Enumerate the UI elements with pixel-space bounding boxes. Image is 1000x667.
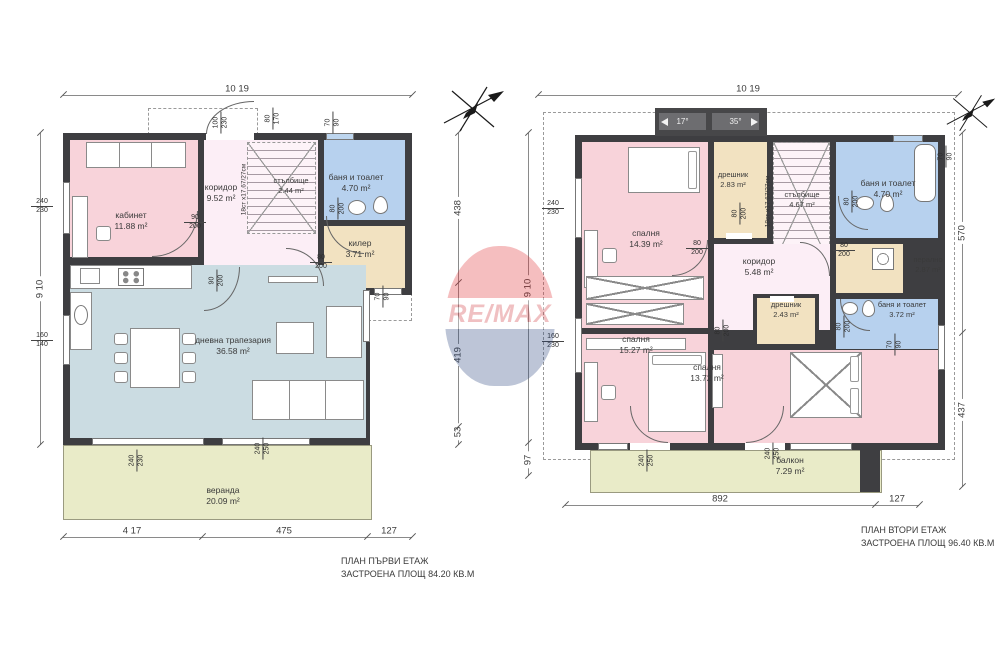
opening-tag: 80200	[714, 320, 731, 342]
opening-tag: 7090	[324, 112, 341, 134]
floor2-caption: ПЛАН ВТОРИ ЕТАЖ ЗАСТРОЕНА ПЛОЩ 96.40 КВ.…	[861, 524, 994, 549]
window-tag: 240250	[638, 450, 655, 472]
window-tag: 7090	[886, 334, 903, 356]
dim-line	[538, 95, 958, 96]
opening-tag: 80200	[310, 254, 332, 271]
dim-label: 127	[886, 494, 908, 505]
window	[575, 178, 582, 238]
stove	[118, 268, 144, 286]
room-label-bedroom2: спалня 15.27 m²	[601, 334, 671, 356]
dim-label: 419	[453, 344, 464, 366]
pillow	[850, 356, 859, 382]
door-opening	[726, 233, 752, 239]
wardrobe	[586, 303, 684, 325]
sofa	[252, 380, 364, 420]
window-tag: 240250	[254, 438, 271, 460]
room-label-bath: баня и тоалет 4.70 m²	[318, 172, 394, 194]
window	[598, 443, 628, 450]
window	[63, 182, 70, 234]
room-label-bedroom1: спалня 14.39 m²	[611, 228, 681, 250]
room-label-bedroom3: спалня 13.72 m²	[672, 362, 742, 384]
north-arrow-icon	[438, 83, 510, 135]
desk	[584, 362, 598, 422]
toilet	[373, 196, 388, 214]
dim-label: 4 17	[120, 526, 145, 537]
sink	[348, 200, 366, 215]
window-tag: 240230	[542, 200, 564, 217]
room-label-stairs2: стълбище 4.67 m²	[770, 190, 834, 210]
wardrobe	[586, 276, 704, 300]
north-arrow-icon	[942, 90, 1000, 136]
dim-label: 10 19	[733, 84, 763, 95]
stair-note: 18ст х17.67/27см	[240, 164, 247, 216]
opening-tag: 80200	[835, 316, 852, 338]
roof-arrow-left-icon	[661, 118, 668, 126]
opening-tag: 80200	[731, 203, 748, 225]
dim-label: 892	[709, 494, 731, 505]
dim-label: 10 19	[222, 84, 252, 95]
sofa	[86, 142, 186, 168]
dim-label: 127	[378, 526, 400, 537]
opening-tag: 80170	[264, 108, 281, 130]
opening-tag: 7090	[374, 286, 391, 308]
window	[790, 443, 852, 450]
opening-tag: 100230	[212, 112, 229, 134]
room-label-kabinet: кабинет 11.88 m²	[96, 210, 166, 232]
armchair	[326, 306, 362, 358]
chair	[114, 352, 128, 364]
window-tag: 160140	[31, 332, 53, 349]
window	[938, 325, 945, 370]
window-tag: 160230	[542, 333, 564, 350]
room-label-bath2: баня и тоалет 3.72 m²	[862, 300, 942, 320]
pillow	[850, 388, 859, 414]
dim-label: 97	[523, 452, 534, 469]
dim-label: 570	[957, 222, 968, 244]
stair-note: 18ст х17.67/27см	[764, 176, 771, 228]
dim-line	[63, 95, 412, 96]
window	[326, 133, 354, 140]
chair	[114, 371, 128, 383]
room-label-koridor2: коридор 5.48 m²	[728, 256, 790, 278]
washing-machine	[872, 248, 894, 270]
room-veranda	[63, 445, 372, 520]
chair	[601, 385, 616, 400]
chair	[114, 333, 128, 345]
dim-label: 9 10	[35, 277, 46, 302]
opening-tag: 90200	[184, 214, 206, 231]
chair	[182, 371, 196, 383]
window-tag: 7090	[937, 146, 954, 168]
dim-line	[962, 133, 963, 487]
dim-line	[63, 537, 412, 538]
room-label-living: дневна трапезария 36.58 m²	[178, 335, 288, 357]
desk	[72, 196, 88, 258]
dim-line	[528, 133, 529, 476]
dim-label: 475	[273, 526, 295, 537]
window	[363, 290, 370, 342]
entry-door-opening	[206, 133, 254, 140]
sink	[74, 305, 88, 325]
window-tag: 240250	[764, 443, 781, 465]
window	[63, 315, 70, 365]
opening-tag: 80200	[843, 191, 860, 213]
dim-label: 438	[453, 197, 464, 219]
window	[92, 438, 204, 445]
dim-label: 437	[957, 399, 968, 421]
roof-arrow-right-icon	[751, 118, 758, 126]
room-balkon	[590, 450, 882, 493]
window-tag: 240230	[31, 198, 53, 215]
opening-tag: 80200	[686, 240, 708, 257]
opening-tag: 80200	[833, 242, 855, 259]
window	[575, 318, 582, 373]
room-label-kiler: килер 3.71 m²	[330, 238, 390, 260]
opening-tag: 80200	[329, 198, 346, 220]
room-label-veranda: веранда 20.09 m²	[188, 485, 258, 507]
balcony-wall	[860, 450, 880, 492]
dim-label: 9 10	[523, 276, 534, 301]
dim-line	[458, 133, 459, 445]
room-label-laundry: перално 2.87 m²	[898, 255, 958, 275]
floor-plan-sheet: кабинет 11.88 m² коридор 9.52 m² стълбищ…	[0, 0, 1000, 667]
kitchen-sink	[80, 268, 100, 284]
chair	[602, 248, 617, 263]
opening-tag: 90200	[208, 270, 225, 292]
dim-line	[565, 505, 919, 506]
room-label-dreshnik2: дрешник 2.43 m²	[757, 300, 815, 320]
dining-table	[130, 328, 180, 388]
room-label-stairs: стълбище 2.44 m²	[258, 176, 324, 196]
window-tag: 240230	[128, 450, 145, 472]
room-label-dreshnik1: дрешник 2.83 m²	[706, 170, 760, 190]
pillow	[688, 151, 697, 189]
window	[893, 135, 923, 142]
floor1-caption: ПЛАН ПЪРВИ ЕТАЖ ЗАСТРОЕНА ПЛОЩ 84.20 КВ.…	[341, 555, 474, 580]
